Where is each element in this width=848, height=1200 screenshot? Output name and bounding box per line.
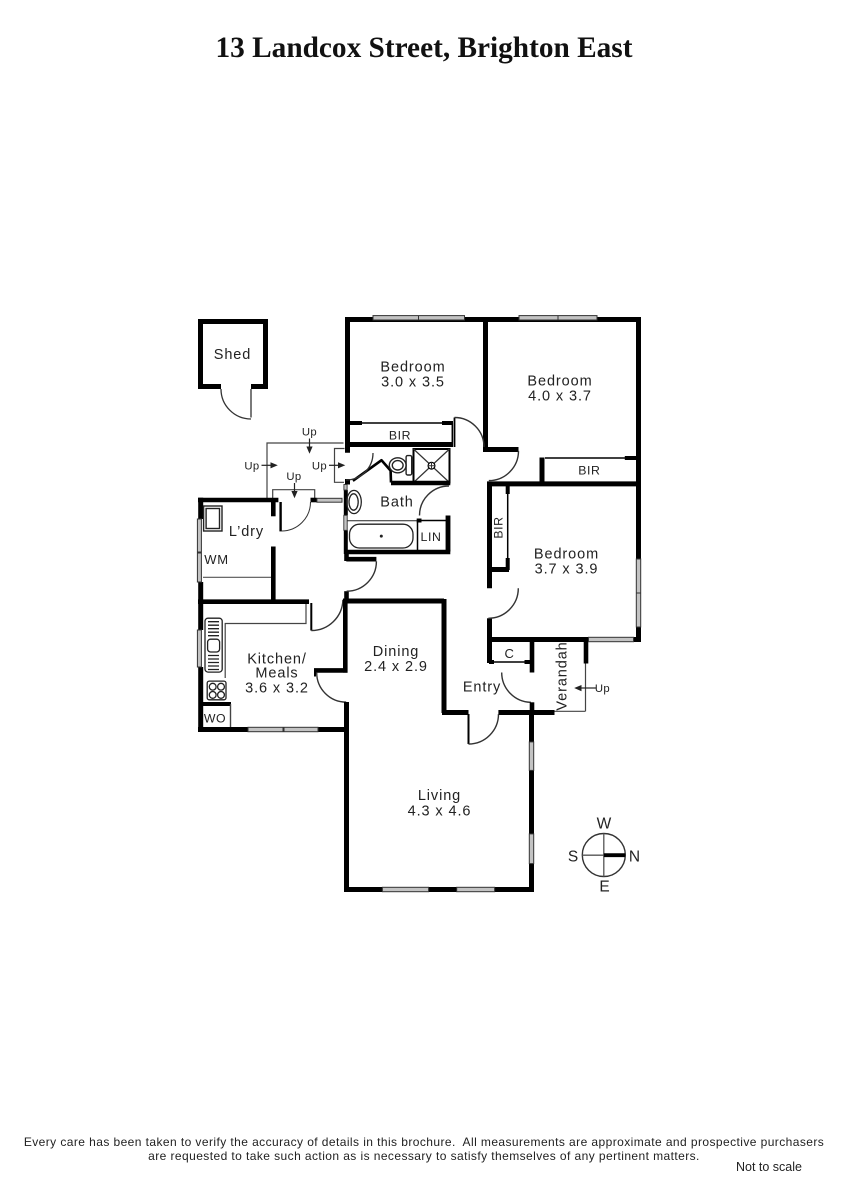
svg-text:WM: WM (204, 552, 229, 567)
svg-text:BIR: BIR (389, 429, 411, 443)
svg-text:BIR: BIR (578, 464, 600, 478)
svg-text:Up: Up (312, 461, 327, 473)
svg-text:WO: WO (204, 712, 226, 726)
svg-text:4.0 x 3.7: 4.0 x 3.7 (528, 389, 592, 405)
svg-text:Dining: Dining (373, 644, 420, 660)
svg-text:3.0 x 3.5: 3.0 x 3.5 (381, 375, 445, 391)
svg-text:C: C (504, 646, 514, 661)
svg-text:LIN: LIN (421, 530, 442, 544)
svg-text:Every care has been taken to v: Every care has been taken to verify the … (24, 1135, 824, 1149)
svg-text:Up: Up (244, 461, 259, 473)
svg-text:S: S (568, 849, 578, 866)
svg-text:N: N (629, 849, 640, 866)
svg-text:Up: Up (302, 427, 317, 439)
svg-text:Bath: Bath (380, 495, 413, 511)
svg-text:13 Landcox Street, Brighton Ea: 13 Landcox Street, Brighton East (216, 32, 633, 64)
svg-text:E: E (599, 879, 609, 896)
svg-text:Bedroom: Bedroom (380, 360, 445, 376)
svg-text:BIR: BIR (492, 516, 506, 538)
svg-text:L’dry: L’dry (229, 524, 264, 540)
svg-text:Shed: Shed (214, 347, 251, 363)
svg-text:Meals: Meals (255, 666, 298, 682)
svg-text:Up: Up (286, 471, 301, 483)
svg-text:Verandah: Verandah (555, 641, 571, 710)
svg-text:4.3 x 4.6: 4.3 x 4.6 (408, 804, 472, 820)
svg-text:W: W (597, 816, 612, 833)
svg-text:Up: Up (595, 683, 610, 695)
svg-text:3.6 x 3.2: 3.6 x 3.2 (245, 681, 309, 697)
svg-text:Bedroom: Bedroom (534, 547, 599, 563)
svg-text:Living: Living (418, 788, 461, 804)
svg-text:2.4 x 2.9: 2.4 x 2.9 (364, 659, 428, 675)
svg-text:Not to scale: Not to scale (736, 1160, 802, 1174)
svg-text:Bedroom: Bedroom (527, 374, 592, 390)
svg-text:Entry: Entry (463, 680, 501, 696)
svg-text:3.7 x 3.9: 3.7 x 3.9 (535, 562, 599, 578)
svg-text:are requested to take such act: are requested to take such action as is … (148, 1149, 700, 1163)
